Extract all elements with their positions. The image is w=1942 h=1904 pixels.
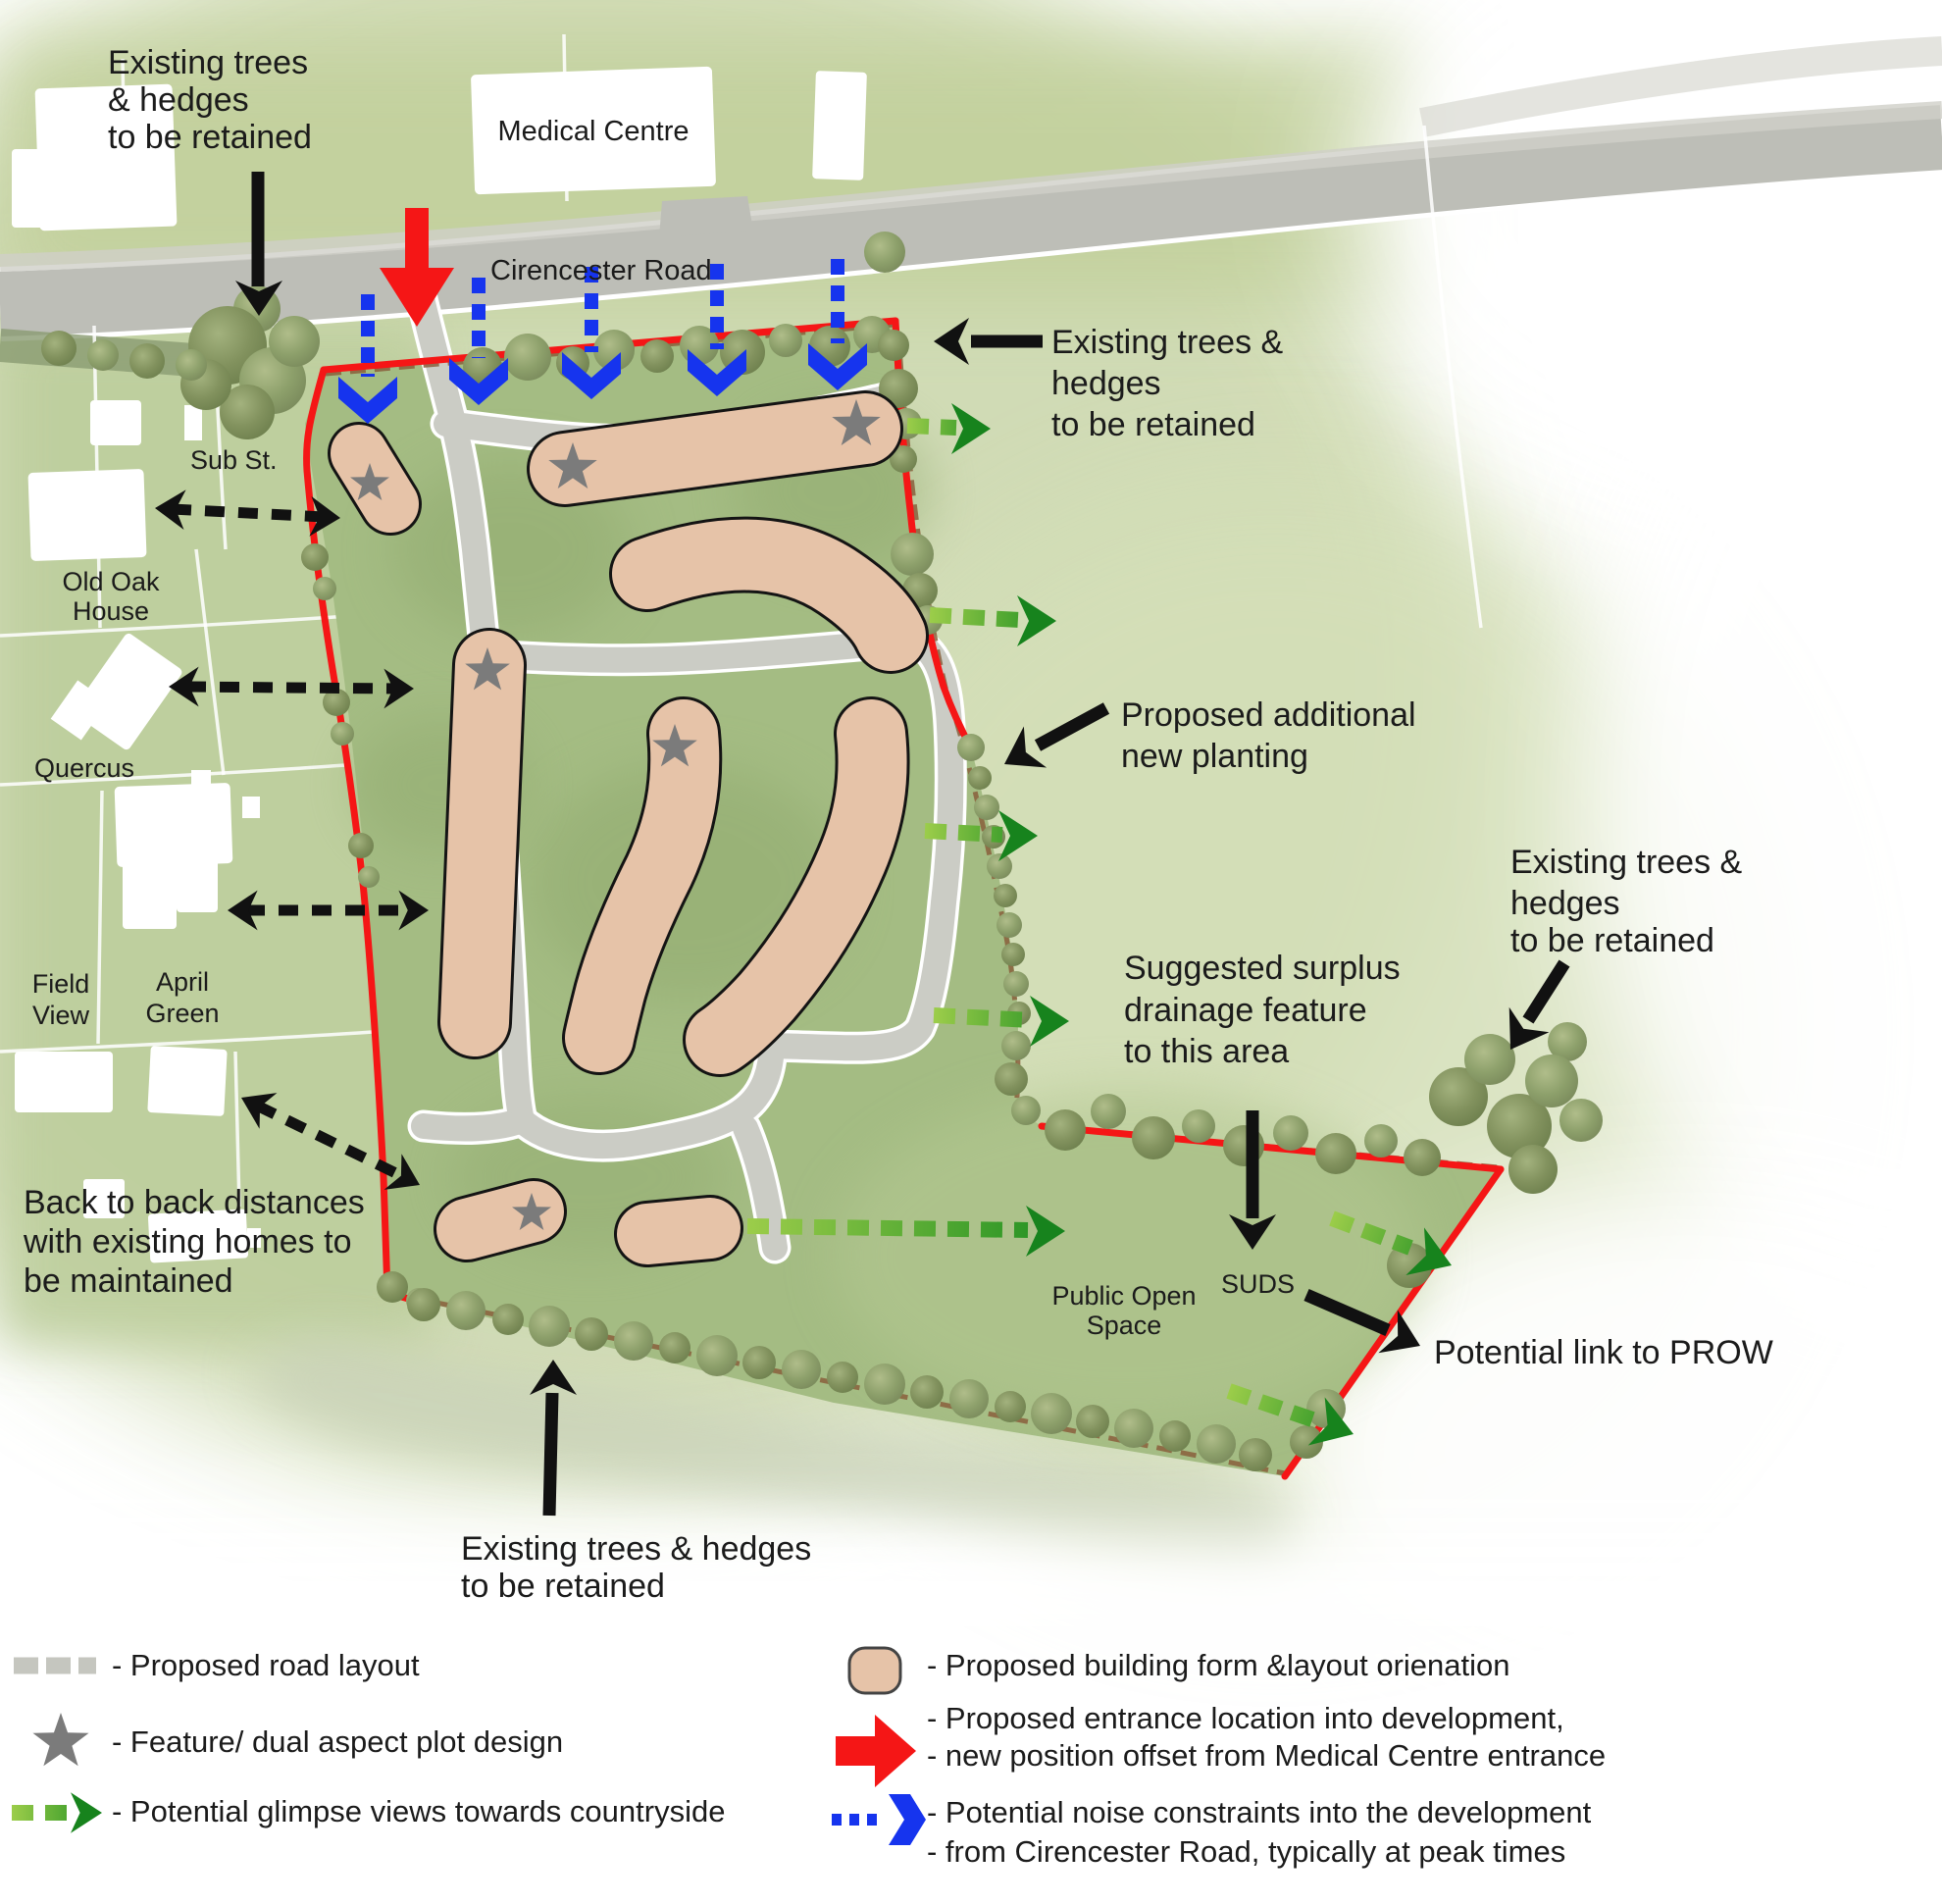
- label-cirencester-road: Cirencester Road: [490, 255, 712, 286]
- annotation-trees-far-right: Existing trees &: [1510, 844, 1743, 881]
- annotation-trees-top-left: to be retained: [108, 119, 312, 156]
- annotation-drainage: drainage feature: [1124, 992, 1367, 1029]
- annotation-planting: Proposed additional: [1121, 696, 1416, 734]
- legend-item-glimpse: - Potential glimpse views towards countr…: [12, 1792, 725, 1833]
- existing-house: [12, 149, 85, 228]
- building-block: [565, 429, 865, 469]
- annotation-planting: new planting: [1121, 738, 1308, 775]
- annotation-trees-top-left: Existing trees: [108, 44, 308, 81]
- label-suds: SUDS: [1221, 1269, 1295, 1299]
- label-field-view: Field: [32, 969, 90, 999]
- annotation-trees-top-right: to be retained: [1051, 406, 1255, 443]
- annotation-trees-top-left: & hedges: [108, 81, 249, 119]
- building-swatch-icon: [849, 1648, 900, 1693]
- building-block: [475, 665, 489, 1022]
- existing-house: [15, 1052, 113, 1112]
- existing-house: [147, 1046, 227, 1116]
- label-old-oak-house: House: [73, 596, 149, 626]
- site-plan-map: Existing trees & hedges to be retained M…: [0, 0, 1942, 1904]
- existing-house: [27, 469, 146, 561]
- annotation-back-to-back: with existing homes to: [23, 1223, 352, 1261]
- building-block: [647, 1228, 710, 1234]
- annotation-back-to-back: be maintained: [24, 1262, 233, 1300]
- existing-house: [184, 405, 202, 440]
- label-public-open-space: Space: [1087, 1311, 1162, 1340]
- label-field-view: View: [32, 1001, 90, 1030]
- label-quercus: Quercus: [34, 753, 134, 783]
- legend-feature-label: - Feature/ dual aspect plot design: [112, 1724, 563, 1759]
- existing-house: [123, 836, 177, 929]
- annotation-prow: Potential link to PROW: [1434, 1334, 1773, 1371]
- label-medical-centre: Medical Centre: [497, 116, 689, 147]
- label-old-oak-house: Old Oak: [62, 567, 160, 596]
- label-april-green: April: [156, 967, 209, 997]
- existing-house: [90, 400, 141, 445]
- roadside-tree: [864, 232, 905, 273]
- annotation-trees-bottom: to be retained: [461, 1568, 665, 1605]
- annotation-drainage: Suggested surplus: [1124, 950, 1401, 987]
- annotation-trees-top-right: Existing trees &: [1051, 324, 1284, 361]
- legend-noise-label: - from Cirencester Road, typically at pe…: [927, 1834, 1565, 1869]
- annotation-back-to-back: Back to back distances: [24, 1184, 365, 1221]
- legend-entrance-label: - new position offset from Medical Centr…: [927, 1738, 1606, 1773]
- label-public-open-space: Public Open: [1051, 1281, 1196, 1311]
- legend-noise-label: - Potential noise constraints into the d…: [927, 1795, 1592, 1829]
- existing-house: [242, 797, 260, 818]
- legend-building-label: - Proposed building form &layout orienat…: [927, 1648, 1510, 1682]
- annotation-trees-far-right: hedges: [1510, 885, 1620, 922]
- label-april-green: Green: [145, 999, 219, 1028]
- annotation-trees-bottom: Existing trees & hedges: [461, 1530, 811, 1568]
- existing-house: [812, 71, 867, 180]
- existing-house: [177, 853, 218, 912]
- label-sub-st: Sub St.: [190, 445, 278, 475]
- legend-road-label: - Proposed road layout: [112, 1648, 420, 1682]
- legend-glimpse-label: - Potential glimpse views towards countr…: [112, 1794, 725, 1828]
- annotation-drainage: to this area: [1124, 1033, 1289, 1070]
- legend-entrance-label: - Proposed entrance location into develo…: [927, 1701, 1564, 1735]
- annotation-trees-far-right: to be retained: [1510, 922, 1714, 959]
- annotation-trees-top-right: hedges: [1051, 365, 1161, 402]
- concept-masterplan: Existing trees & hedges to be retained M…: [0, 0, 1942, 1904]
